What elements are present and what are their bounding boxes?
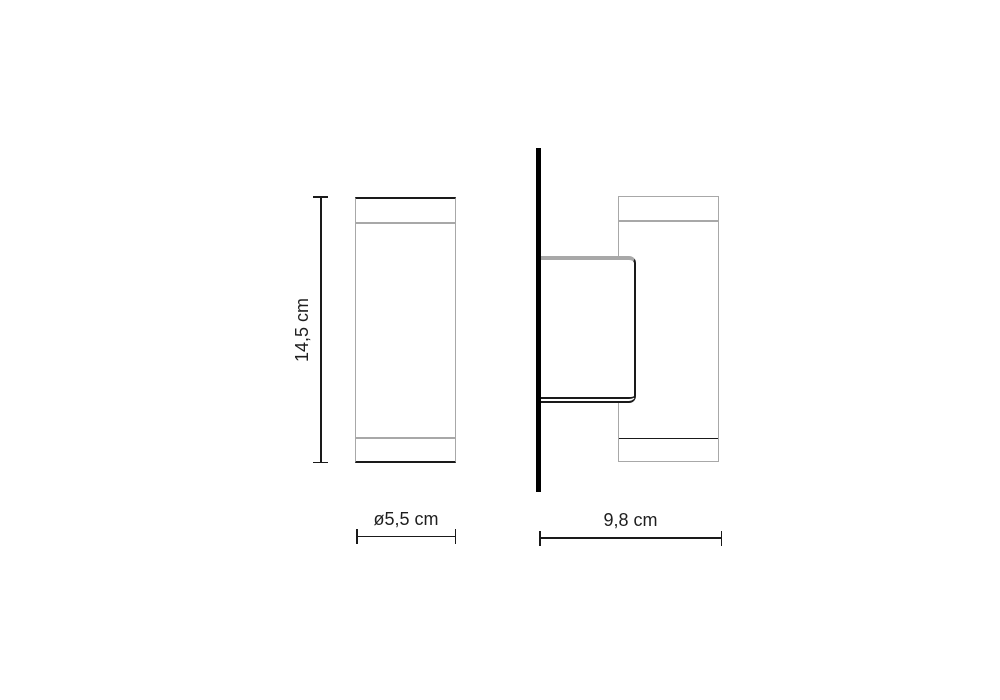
height-dimension-tick-top <box>313 196 328 198</box>
diameter-dimension-tick-right <box>455 529 457 544</box>
depth-dimension-line <box>539 537 722 539</box>
height-dimension-line <box>320 196 322 463</box>
depth-dimension-tick-right <box>721 531 723 546</box>
depth-dimension-label: 9,8 cm <box>539 510 722 530</box>
front-view-top-cap-line <box>356 222 455 224</box>
front-view-lamp-body <box>355 197 456 463</box>
depth-dimension-tick-left <box>539 531 541 546</box>
side-view-top-cap-line <box>619 220 718 222</box>
mounting-bracket <box>541 256 636 403</box>
height-dimension-label: 14,5 cm <box>292 298 312 362</box>
side-view-bottom-cap-line <box>619 438 718 440</box>
height-dimension-tick-bottom <box>313 462 328 464</box>
front-view-bottom-cap-line <box>356 437 455 439</box>
diameter-dimension-line <box>356 536 456 538</box>
dimension-drawing: 14,5 cm ø5,5 cm 9,8 cm <box>0 0 1000 700</box>
diameter-dimension-tick-left <box>356 529 358 544</box>
diameter-dimension-label: ø5,5 cm <box>356 509 456 529</box>
